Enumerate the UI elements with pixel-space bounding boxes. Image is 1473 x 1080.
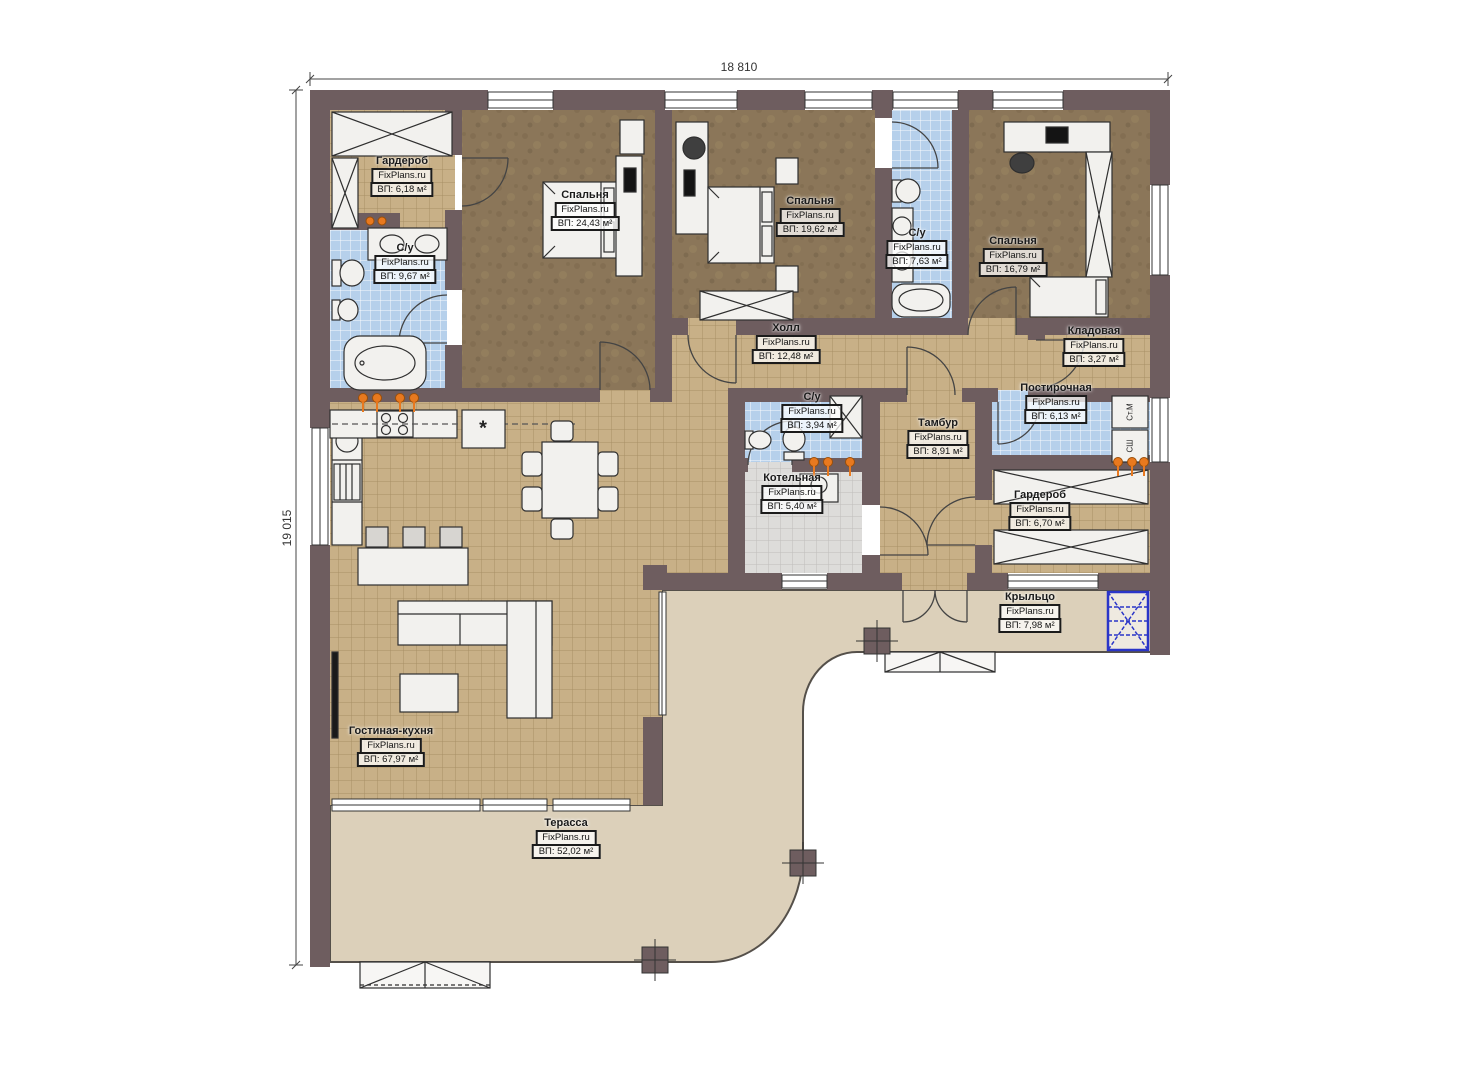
porch-steps-icon <box>885 652 995 672</box>
nightstand-icon <box>776 266 798 292</box>
wardrobe-cabinet-icon <box>994 530 1148 564</box>
fridge-symbol: * <box>479 418 487 441</box>
kitchen-sink-column-icon <box>332 420 362 545</box>
dryer-label: СШ <box>1126 439 1135 452</box>
wardrobe-cabinet-icon <box>332 112 452 156</box>
room-label-bedroom-3: Спальня FixPlans.ru ВП: 16,79 м² <box>979 236 1048 277</box>
room-label-terrace: Терасса FixPlans.ru ВП: 52,02 м² <box>532 818 601 859</box>
nightstand-icon <box>776 158 798 184</box>
sink-icon <box>745 431 771 449</box>
room-label-bedroom-1: Спальня FixPlans.ru ВП: 24,43 м² <box>551 190 620 231</box>
wardrobe-cabinet-icon <box>700 291 793 320</box>
dimension-height-label: 19 015 <box>280 510 294 547</box>
room-label-wardrobe-1: Гардероб FixPlans.ru ВП: 6,18 м² <box>370 156 433 197</box>
bar-counter-icon <box>358 527 468 585</box>
porch-grate-icon <box>1108 592 1148 650</box>
desk-icon <box>616 120 644 276</box>
dimension-width-label: 18 810 <box>721 60 758 74</box>
bed-icon <box>1030 277 1108 317</box>
room-label-bath-2: С/у FixPlans.ru ВП: 7,63 м² <box>885 228 948 269</box>
terrace-steps-icon <box>360 962 490 988</box>
room-label-porch: Крыльцо FixPlans.ru ВП: 7,98 м² <box>998 592 1061 633</box>
room-label-bedroom-2: Спальня FixPlans.ru ВП: 19,62 м² <box>776 196 845 237</box>
room-label-living-kitchen: Гостиная-кухня FixPlans.ru ВП: 67,97 м² <box>349 726 433 767</box>
washer-label: Ст.М <box>1126 403 1135 420</box>
wardrobe-cabinet-icon <box>1086 152 1112 277</box>
bidet-icon <box>332 299 358 321</box>
floor-plan-page: 18 810 19 015 Гардероб FixPlans.ru ВП: 6… <box>0 0 1473 1080</box>
room-label-hall: Холл FixPlans.ru ВП: 12,48 м² <box>752 323 821 364</box>
room-label-boiler: Котельная FixPlans.ru ВП: 5,40 м² <box>760 473 823 514</box>
room-label-storage: Кладовая FixPlans.ru ВП: 3,27 м² <box>1062 326 1125 367</box>
room-label-bath-3: С/у FixPlans.ru ВП: 3,94 м² <box>780 392 843 433</box>
room-label-bath-1: С/у FixPlans.ru ВП: 9,67 м² <box>373 243 436 284</box>
bathtub-icon <box>892 284 950 317</box>
room-label-laundry: Постирочная FixPlans.ru ВП: 6,13 м² <box>1020 383 1091 424</box>
floor-plan-drawing <box>0 0 1473 1080</box>
bed-icon <box>708 187 774 263</box>
wardrobe-cabinet-icon <box>332 158 358 228</box>
room-label-wardrobe-2: Гардероб FixPlans.ru ВП: 6,70 м² <box>1008 490 1071 531</box>
toilet-icon <box>332 260 364 286</box>
desk-icon <box>676 122 708 234</box>
coffee-table-icon <box>400 674 458 712</box>
tv-icon <box>332 652 338 738</box>
radiator-icon <box>1114 458 1149 477</box>
bathtub-icon <box>344 336 426 390</box>
toilet-icon <box>892 179 920 203</box>
room-label-vestibule: Тамбур FixPlans.ru ВП: 8,91 м² <box>906 418 969 459</box>
